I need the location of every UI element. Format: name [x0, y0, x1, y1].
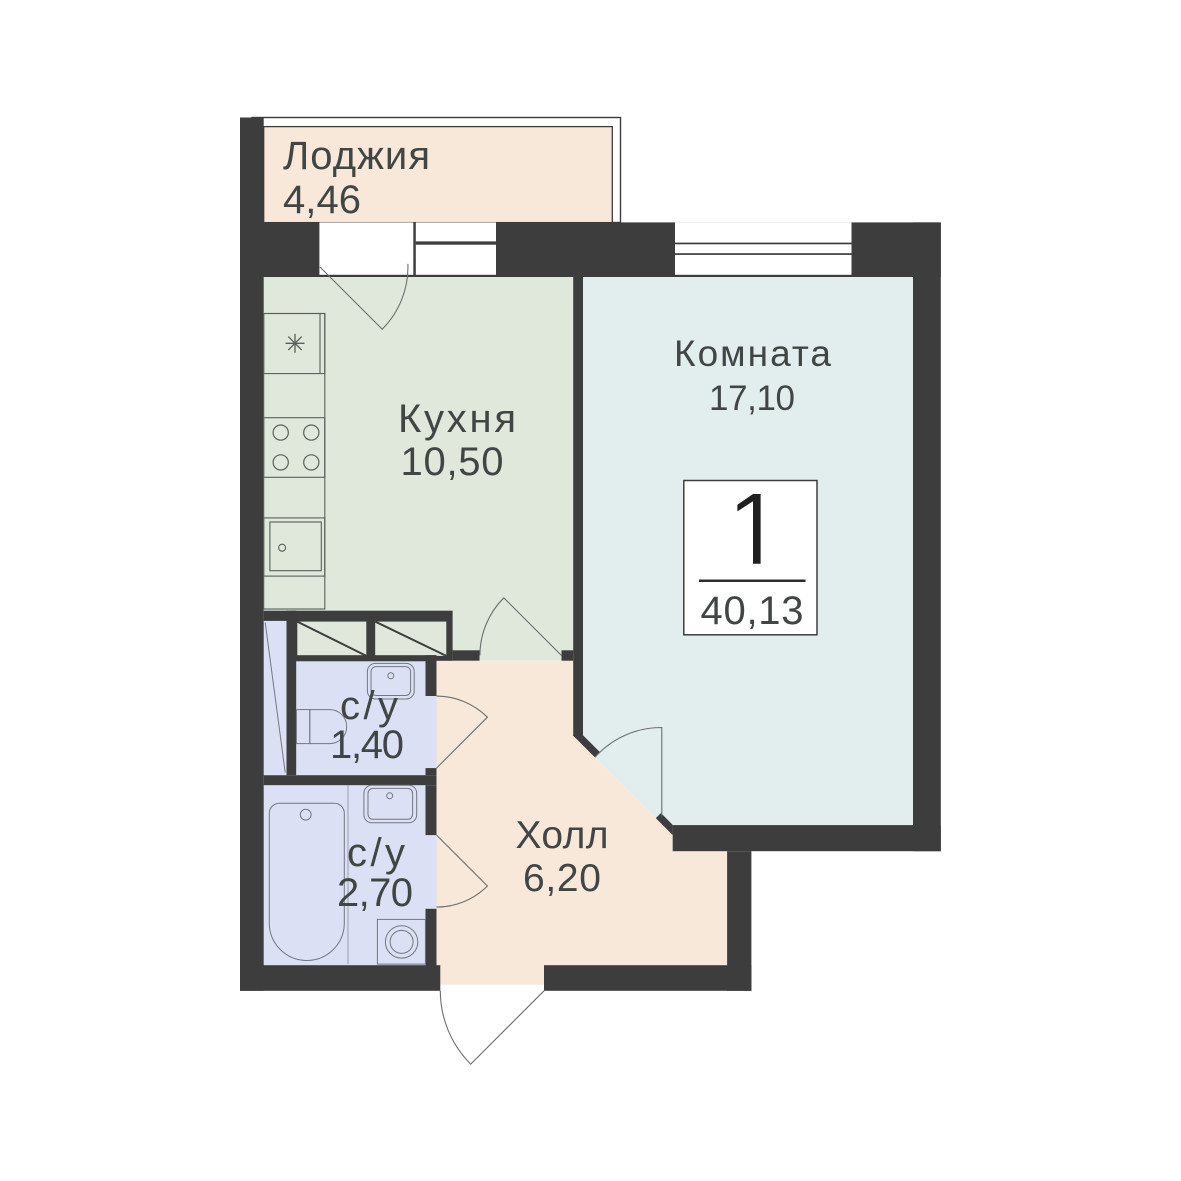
- svg-text:Кухня: Кухня: [398, 397, 516, 441]
- svg-text:4,46: 4,46: [283, 178, 361, 222]
- svg-text:Холл: Холл: [516, 814, 609, 857]
- svg-text:с/у: с/у: [340, 684, 398, 728]
- svg-text:10,50: 10,50: [401, 440, 504, 484]
- svg-text:17,10: 17,10: [709, 379, 795, 418]
- svg-text:с/у: с/у: [347, 831, 405, 875]
- svg-text:2,70: 2,70: [337, 871, 413, 915]
- svg-text:6,20: 6,20: [523, 857, 601, 900]
- svg-text:40,13: 40,13: [701, 589, 804, 633]
- svg-text:Комната: Комната: [674, 333, 831, 374]
- svg-text:Лоджия: Лоджия: [283, 134, 430, 178]
- svg-text:1,40: 1,40: [330, 723, 404, 767]
